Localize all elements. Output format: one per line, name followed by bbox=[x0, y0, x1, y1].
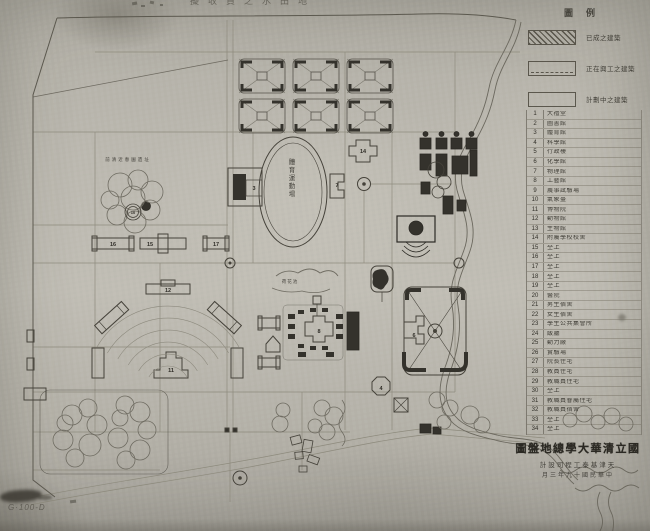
legend-label: 正在興工之建築 bbox=[586, 63, 635, 73]
building-name: 仝上 bbox=[544, 254, 560, 260]
building-name: 物理館 bbox=[544, 169, 567, 175]
building-number: 9 bbox=[527, 186, 544, 195]
building-number: 24 bbox=[527, 330, 544, 339]
legend-title: 圖例 bbox=[564, 6, 646, 19]
building-list-row: 16仝上 bbox=[527, 253, 641, 263]
building-name: 教職員眷屬住宅 bbox=[544, 398, 593, 404]
building-name: 化學館 bbox=[544, 159, 567, 165]
building-name: 教職員宿舍 bbox=[544, 407, 580, 413]
building-list-row: 8工藝館 bbox=[527, 177, 641, 187]
building-list-row: 31教職員眷屬住宅 bbox=[527, 396, 641, 406]
legend-swatch-plain bbox=[528, 92, 576, 107]
building-number: 30 bbox=[527, 387, 544, 396]
building-number: 19 bbox=[527, 282, 544, 291]
building-number: 10 bbox=[527, 196, 544, 205]
building-list-row: 30仝上 bbox=[527, 387, 641, 397]
building-name: 科學館 bbox=[544, 140, 567, 146]
map-number-17: 17 bbox=[213, 242, 219, 248]
building-list-row: 24飯廳 bbox=[527, 330, 641, 340]
building-name: 動力廠 bbox=[544, 340, 567, 346]
building-list-row: 4科學館 bbox=[527, 139, 641, 149]
building-list-row: 34仝上 bbox=[527, 425, 641, 435]
building-name: 學生公共集會所 bbox=[544, 321, 593, 327]
legend-item-planned: 計劃中之建築 bbox=[526, 84, 646, 112]
pond-label: 荷花池 bbox=[282, 278, 299, 285]
building-list-row: 29教職員住宅 bbox=[527, 377, 641, 387]
building-name: 博物院 bbox=[544, 207, 567, 213]
legend-label: 計劃中之建築 bbox=[586, 94, 628, 104]
building-name: 教職員住宅 bbox=[544, 379, 580, 385]
building-list-row: 5行政樓 bbox=[527, 148, 641, 158]
building-name: 仝上 bbox=[544, 426, 560, 432]
building-list-row: 6化學館 bbox=[527, 158, 641, 168]
legend-item-under-construction: 正在興工之建築 bbox=[526, 53, 646, 81]
map-number-12: 12 bbox=[165, 288, 171, 294]
building-list-row: 27院長住宅 bbox=[527, 358, 641, 368]
building-number: 14 bbox=[527, 234, 544, 243]
building-list-row: 10氣象臺 bbox=[527, 196, 641, 206]
building-number: 27 bbox=[527, 358, 544, 367]
building-list-row: 12動物館 bbox=[527, 215, 641, 225]
building-number: 33 bbox=[527, 416, 544, 425]
building-number: 7 bbox=[527, 167, 544, 176]
title-block: 圖盤地總學大華清立國 計設司程工泰基津天 月三年九十國民華中 bbox=[512, 440, 644, 479]
building-number: 29 bbox=[527, 377, 544, 386]
map-title-date-line: 月三年九十國民華中 bbox=[512, 470, 644, 479]
building-name: 男生宿舍 bbox=[544, 302, 573, 308]
map-building-numbers: 14 3 7 16 15 17 12 11 8 6 4 10 bbox=[110, 149, 416, 392]
building-number: 8 bbox=[527, 177, 544, 186]
photo-blemish-spot bbox=[618, 314, 626, 321]
building-number: 17 bbox=[527, 263, 544, 272]
building-name: 實驗場 bbox=[544, 350, 567, 356]
building-number: 11 bbox=[527, 205, 544, 214]
legend-swatch-outlined bbox=[528, 61, 576, 76]
map-number-11: 11 bbox=[168, 368, 174, 374]
building-name: 教員住宅 bbox=[544, 369, 573, 375]
map-number-8: 8 bbox=[317, 329, 320, 335]
building-list-row: 20醫院 bbox=[527, 291, 641, 301]
map-number-10: 10 bbox=[131, 210, 136, 215]
building-list-row: 25動力廠 bbox=[527, 339, 641, 349]
building-name: 氣象臺 bbox=[544, 197, 567, 203]
building-list-row: 26實驗場 bbox=[527, 349, 641, 359]
building-name: 附屬學校校舍 bbox=[544, 235, 586, 241]
building-list-row: 1大禮堂 bbox=[527, 110, 641, 120]
legend-swatch-hatched bbox=[528, 30, 576, 45]
building-number: 6 bbox=[527, 158, 544, 167]
photo-blemish-smudge bbox=[38, 495, 52, 500]
building-number: 32 bbox=[527, 406, 544, 415]
corner-mark: G·100-D bbox=[8, 503, 46, 512]
building-number: 20 bbox=[527, 291, 544, 300]
building-list: 1大禮堂2圖書館3體育館4科學館5行政樓6化學館7物理館8工藝館9農事試驗場10… bbox=[526, 110, 642, 435]
building-number: 26 bbox=[527, 349, 544, 358]
building-name: 仝上 bbox=[544, 417, 560, 423]
building-number: 4 bbox=[527, 139, 544, 148]
map-number-3: 3 bbox=[252, 186, 255, 192]
building-name: 仝上 bbox=[544, 274, 560, 280]
oval-label: 體育運動場 bbox=[289, 157, 296, 198]
map-number-15: 15 bbox=[147, 242, 153, 248]
building-number: 15 bbox=[527, 244, 544, 253]
building-number: 1 bbox=[527, 110, 544, 119]
existing-buildings-layer bbox=[142, 132, 478, 435]
building-name: 醫院 bbox=[544, 293, 560, 299]
map-number-4: 4 bbox=[379, 386, 383, 392]
legend: 圖例 已成之建築 正在興工之建築 計劃中之建築 bbox=[526, 6, 646, 112]
building-name: 體育館 bbox=[544, 130, 567, 136]
building-list-row: 9農事試驗場 bbox=[527, 186, 641, 196]
map-number-16: 16 bbox=[110, 242, 116, 248]
legend-label: 已成之建築 bbox=[586, 32, 621, 42]
photo-bottom-shading bbox=[0, 519, 650, 531]
building-list-row: 3體育館 bbox=[527, 129, 641, 139]
building-list-row: 23學生公共集會所 bbox=[527, 320, 641, 330]
grove-label: 前清近春園遺址 bbox=[105, 156, 151, 163]
building-name: 生物館 bbox=[544, 226, 567, 232]
building-number: 2 bbox=[527, 120, 544, 129]
building-list-row: 13生物館 bbox=[527, 225, 641, 235]
planned-buildings-layer bbox=[24, 59, 466, 485]
building-number: 28 bbox=[527, 368, 544, 377]
map-title-designer-line: 計設司程工泰基津天 bbox=[512, 459, 644, 469]
building-number: 16 bbox=[527, 253, 544, 262]
grove-near-spring-garden bbox=[101, 170, 163, 233]
building-name: 仝上 bbox=[544, 283, 560, 289]
building-name: 動物館 bbox=[544, 216, 567, 222]
building-list-row: 2圖書館 bbox=[527, 120, 641, 130]
building-list-row: 17仝上 bbox=[527, 263, 641, 273]
map-number-7: 7 bbox=[335, 183, 338, 189]
building-number: 12 bbox=[527, 215, 544, 224]
building-name: 仝上 bbox=[544, 245, 560, 251]
amphitheater-terraces bbox=[97, 306, 239, 377]
building-list-row: 21男生宿舍 bbox=[527, 301, 641, 311]
building-number: 22 bbox=[527, 310, 544, 319]
building-name: 女生宿舍 bbox=[544, 312, 573, 318]
building-list-row: 15仝上 bbox=[527, 244, 641, 254]
building-number: 31 bbox=[527, 396, 544, 405]
building-number: 18 bbox=[527, 272, 544, 281]
map-number-14: 14 bbox=[360, 149, 367, 155]
building-number: 34 bbox=[527, 425, 544, 434]
building-number: 3 bbox=[527, 129, 544, 138]
building-name: 仝上 bbox=[544, 388, 560, 394]
legend-item-completed: 已成之建築 bbox=[526, 22, 646, 50]
map-title: 圖盤地總學大華清立國 bbox=[512, 440, 644, 456]
building-name: 仝上 bbox=[544, 264, 560, 270]
building-number: 13 bbox=[527, 225, 544, 234]
building-list-row: 19仝上 bbox=[527, 282, 641, 292]
building-name: 圖書館 bbox=[544, 121, 567, 127]
scanned-campus-plan-photo: 體育運動場 前清近春園遺址 荷花池 14 3 7 16 15 17 12 11 … bbox=[0, 0, 650, 531]
building-list-row: 33仝上 bbox=[527, 416, 641, 426]
building-list-row: 18仝上 bbox=[527, 272, 641, 282]
top-edge-annotation: 擬收買之水田地 bbox=[190, 0, 340, 7]
building-name: 飯廳 bbox=[544, 331, 560, 337]
building-number: 23 bbox=[527, 320, 544, 329]
building-name: 大禮堂 bbox=[544, 111, 567, 117]
building-name: 工藝館 bbox=[544, 178, 567, 184]
building-name: 行政樓 bbox=[544, 149, 567, 155]
boundary-wall bbox=[33, 14, 516, 497]
map-number-6: 6 bbox=[412, 333, 415, 339]
building-list-row: 32教職員宿舍 bbox=[527, 406, 641, 416]
building-number: 21 bbox=[527, 301, 544, 310]
building-list-row: 28教員住宅 bbox=[527, 368, 641, 378]
building-list-row: 7物理館 bbox=[527, 167, 641, 177]
building-number: 25 bbox=[527, 339, 544, 348]
building-number: 5 bbox=[527, 148, 544, 157]
building-list-row: 14附屬學校校舍 bbox=[527, 234, 641, 244]
building-list-row: 11博物院 bbox=[527, 205, 641, 215]
building-name: 農事試驗場 bbox=[544, 188, 580, 194]
building-name: 院長住宅 bbox=[544, 359, 573, 365]
